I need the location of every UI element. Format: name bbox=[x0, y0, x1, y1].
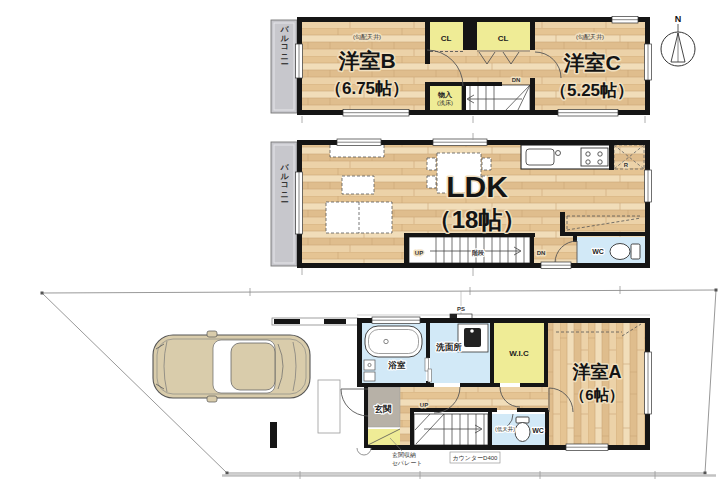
floor-plan-drawing: バルコニー (勾配天井) 洋室B （6.75帖） CL CL 物入 (浅床) D… bbox=[0, 0, 728, 479]
wc-1f-label: WC bbox=[532, 427, 544, 434]
room-b-label: 洋室B bbox=[337, 49, 395, 72]
ldk-size: （18帖） bbox=[428, 206, 527, 233]
stairs-2f-label: 階段 bbox=[472, 249, 485, 257]
floor-2f-plan: バルコニー LDK （18帖） UP 階段 DN WC R bbox=[271, 133, 652, 276]
toilet-2f-icon bbox=[610, 244, 640, 260]
room-c-ceiling-note: (勾配天井) bbox=[576, 34, 604, 41]
coffee-table bbox=[342, 176, 374, 194]
car-mirror bbox=[207, 396, 217, 402]
vanity-sink-icon bbox=[458, 324, 488, 352]
stairs-2f-dn-label: DN bbox=[537, 250, 546, 256]
wc-1f-ceiling-note: (低天井) bbox=[495, 426, 515, 432]
refrigerator-label: R bbox=[624, 162, 629, 168]
stairs-3f-dn-label: DN bbox=[512, 77, 521, 83]
room-b-ceiling-note: (勾配天井) bbox=[353, 34, 381, 41]
entrance-storage-note-1: 玄関収納 bbox=[392, 451, 416, 458]
floor-plan-page: バルコニー (勾配天井) 洋室B （6.75帖） CL CL 物入 (浅床) D… bbox=[0, 0, 728, 479]
room-a-wood bbox=[548, 323, 645, 445]
ldk-label: LDK bbox=[446, 170, 508, 203]
wic-label: W.I.C bbox=[509, 349, 529, 358]
floor-3f-plan: バルコニー (勾配天井) 洋室B （6.75帖） CL CL 物入 (浅床) D… bbox=[271, 17, 652, 124]
balcony-3f-label: バルコニー bbox=[280, 19, 290, 65]
closet-2-label: CL bbox=[498, 34, 509, 43]
car-mirror bbox=[207, 331, 217, 337]
tv-board bbox=[330, 144, 384, 157]
room-c-size: （5.25帖） bbox=[550, 81, 634, 100]
stairs-2f-up-label: UP bbox=[415, 250, 423, 256]
wc-2f-label: WC bbox=[592, 248, 604, 255]
storage-note: (浅床) bbox=[437, 99, 453, 106]
stairs-1f bbox=[414, 414, 488, 445]
balcony-2f-label: バルコニー bbox=[280, 157, 290, 203]
kitchen-counter bbox=[521, 145, 611, 169]
north-label: N bbox=[675, 14, 682, 24]
counter-note-label: カウンターD400 bbox=[453, 455, 499, 461]
bathroom-label: 浴室 bbox=[388, 360, 407, 370]
closet-1-label: CL bbox=[441, 34, 452, 43]
stairs-1f-up-label: UP bbox=[420, 402, 428, 408]
bathtub-icon bbox=[365, 326, 422, 357]
approach-step bbox=[318, 380, 340, 433]
washroom-label: 洗面所 bbox=[435, 342, 462, 352]
ps-label: PS bbox=[457, 306, 465, 312]
stairs-3f bbox=[462, 85, 530, 112]
room-c-label: 洋室C bbox=[562, 51, 620, 74]
entrance-storage-note-2: セパレート bbox=[392, 460, 423, 466]
toilet-1f-icon bbox=[515, 417, 530, 442]
entrance-label: 玄関 bbox=[374, 404, 393, 414]
storage-label: 物入 bbox=[437, 90, 453, 99]
pilotis-post bbox=[270, 422, 277, 448]
car-illustration bbox=[153, 331, 310, 402]
room-b-size: （6.75帖） bbox=[325, 79, 409, 98]
room-a-label: 洋室A bbox=[572, 362, 622, 382]
stairs-2f bbox=[409, 237, 530, 263]
room-a-size: （6帖） bbox=[570, 386, 623, 404]
